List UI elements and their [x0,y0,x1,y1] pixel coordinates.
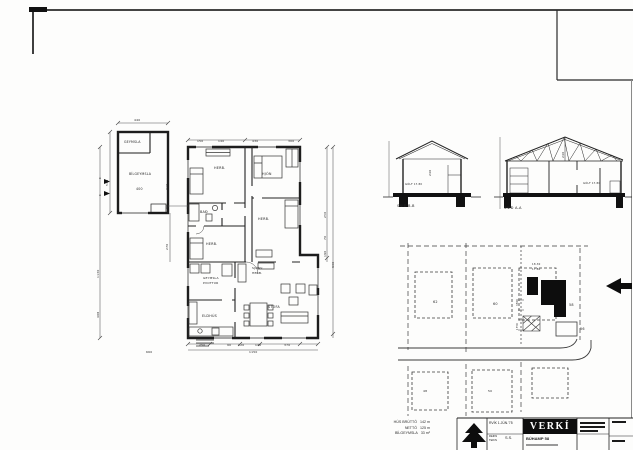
dim-label: 240 [429,170,432,176]
stat-row: NETTÓ 125 m [366,426,430,430]
dim-label: 660 [146,351,152,354]
dim-label: 1750 [517,323,519,330]
room-label-sjonv: SJÓNV. [252,267,263,270]
stat-row: HÚS BRÚTTÓ 142 m [366,420,430,424]
stat-label: NETTÓ [366,426,417,430]
dim-label: 120 [238,344,244,347]
dim-label: 570 [106,180,109,186]
address-text-line [580,426,605,428]
titleblock-date: RVÍK 1.JÚN.'75 [489,422,513,425]
room-label-geymsla-garage: GEYMSLA [124,141,141,144]
elev-label: GÓLF 17.80 [583,183,600,186]
stat-label: HÚS BRÚTTÓ [366,420,417,424]
room-label-herb-2: HERB. [206,243,217,246]
room-label-bad: BAÐ [200,211,208,214]
room-label-herb-1: HERB. [214,167,225,170]
dim-label: 140 [255,344,261,347]
dim-label: 90 [166,205,169,209]
address-text-line [580,422,605,424]
section-label-bb: SNIÐ B-B [397,205,415,209]
dim-label: 430 [252,140,258,143]
stat-row: BÍLGEYMSLA 33 m² [366,431,430,435]
elev-label: 18.30 [532,264,540,267]
dim-label: 140 [218,140,224,143]
dim-label: 408 [97,312,100,318]
plot-label-58: 58 [569,304,574,307]
section-label-aa: SNIÐ A-A [504,207,522,211]
dim-label: 240 [562,152,565,158]
dim-label: 70 [324,236,327,240]
stat-value: 125 m [420,426,430,430]
room-label-herb-3: HERB. [258,218,269,221]
project-subtext [526,444,558,446]
stat-label: BÍLGEYMSLA [366,431,418,435]
label-layer: GEYMSLABÍLGEYMSLAHERB.HJÓNBAÐHERB.HERB.G… [0,0,633,450]
elev-label: 17.80 [532,269,540,272]
room-label-sjonv-herb: HERB. [252,272,262,275]
dim-label: 90 [227,344,231,347]
dim-label: 3500 [517,299,519,306]
dim-label: 310 [166,184,169,190]
room-label-eldhus: ELDHÚS [202,315,217,318]
room-label-geymsla: GEYMSLA [203,277,219,280]
plot-label-50: 50 [488,390,492,393]
stat-value: 142 m [420,420,430,424]
address-text-line [580,430,598,432]
dim-label: 270 [166,244,169,250]
dim-label: 150 [197,140,203,143]
dim-label: 300 [288,140,294,143]
plot-label-48: 48 [423,390,427,393]
plot-label-60: 60 [493,303,498,306]
titleblock-project: BÚHAMP 58 [526,437,549,441]
dim-label: 190 [324,251,327,257]
section-cut-label-a: A [99,177,101,180]
room-label-thvottur: ÞVOTTUR [203,282,218,285]
room-label-bilgeymsla: BÍLGEYMSLA [129,173,151,176]
dim-label: 1150 [249,351,257,354]
room-label-hjon: HJÓN [262,173,272,176]
elev-label: GÓLF 17.80 [405,184,422,187]
room-label-stofa: STOFA [268,306,280,309]
verk-logo: VERKÍ [523,419,577,434]
area-statistics: HÚS BRÚTTÓ 142 m NETTÓ 125 m BÍLGEYMSLA … [366,420,430,437]
dim-label: 400 [136,188,143,191]
dim-label: 250 [199,344,205,347]
dim-label: 250 [324,212,327,218]
dim-label: 930 [332,262,335,268]
dim-label: 1130 [97,270,100,278]
section-cut-label-a: A [99,194,101,197]
drawing-sheet: GEYMSLABÍLGEYMSLAHERB.HJÓNBAÐHERB.HERB.G… [0,0,633,450]
dim-label: 440 [134,119,140,122]
plot-label-56: 56 [580,328,585,331]
stat-value: 33 m² [421,431,430,435]
plot-label-62: 62 [433,301,438,304]
titleblock-small-text [612,440,625,442]
titleblock-small-text [612,421,626,423]
titleblock-initials: S.S. [505,437,512,441]
verk-logo-text: VERKÍ [530,421,570,432]
dim-label: 370 [284,344,290,347]
titleblock-field-teikn: TEIKN [489,440,497,443]
